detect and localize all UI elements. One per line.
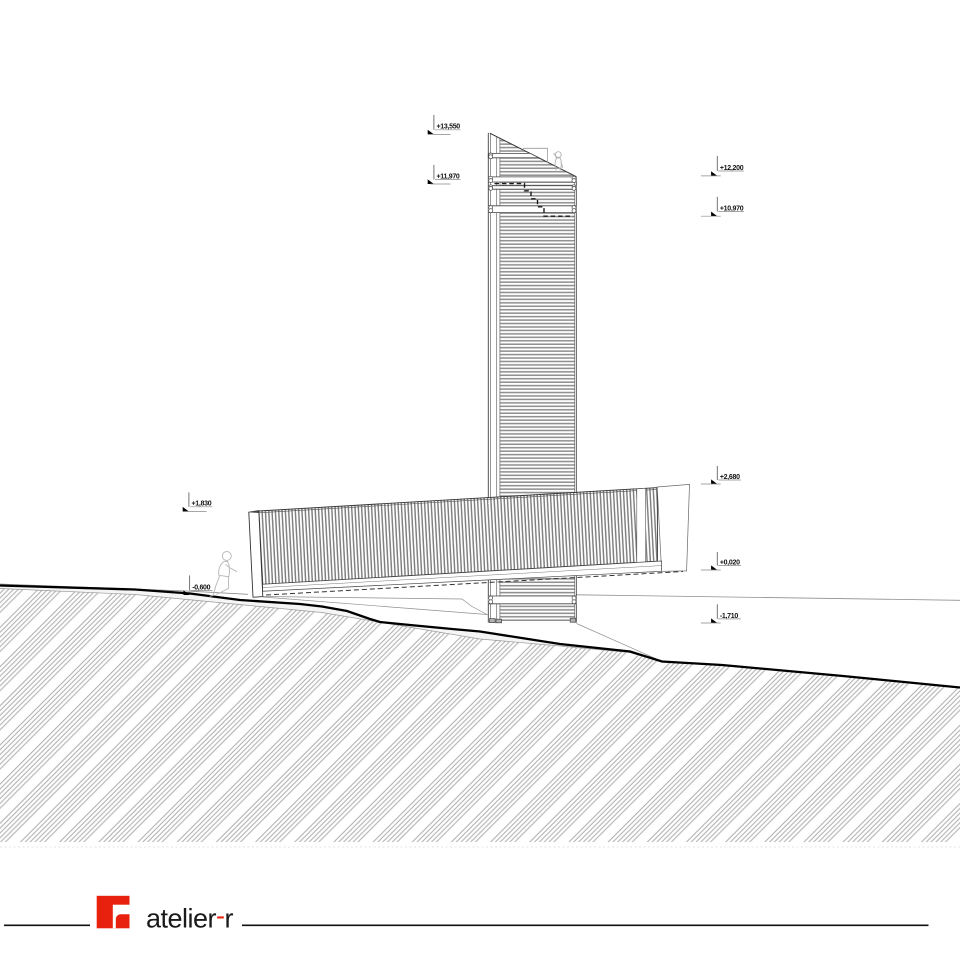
svg-text:atelier-r: atelier-r: [146, 901, 234, 934]
